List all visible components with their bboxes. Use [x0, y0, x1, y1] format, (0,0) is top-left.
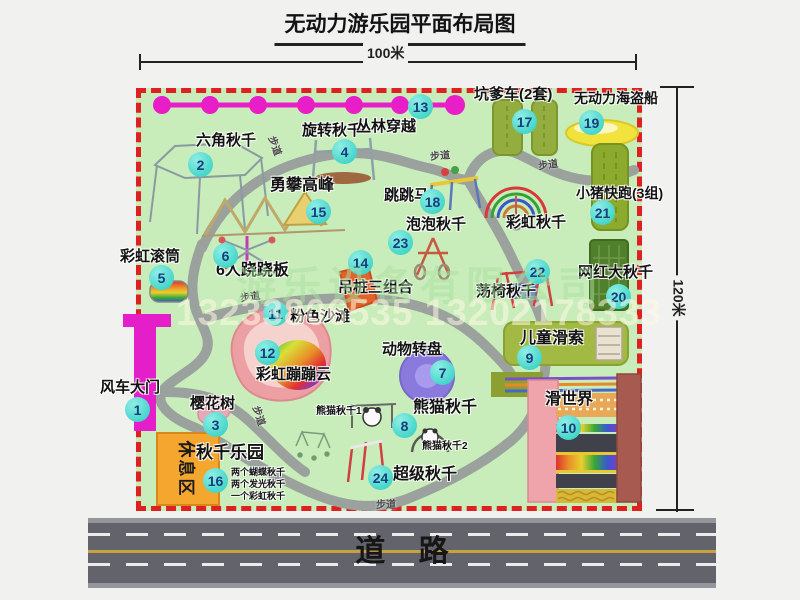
- label-cherry-tree: 樱花树: [190, 396, 235, 413]
- path-label-3: 步道: [537, 155, 559, 173]
- badge-24: 24: [368, 465, 393, 490]
- screenshot-stage: 无动力游乐园平面布局图 100米 120米: [0, 0, 800, 600]
- label-swing-paradise-note-3: 一个彩虹秋千: [231, 492, 285, 502]
- badge-11: 11: [263, 301, 288, 326]
- badge-21: 21: [590, 200, 615, 225]
- label-rainbow-roller: 彩虹滚筒: [120, 249, 180, 266]
- dimension-tick-right-top: [660, 86, 694, 88]
- label-pit-cars: 坑爹车(2套): [474, 87, 552, 104]
- label-windmill-gate: 风车大门: [100, 380, 160, 397]
- bubble-swing-structure: [415, 238, 449, 279]
- dimension-tick-top-left: [139, 54, 141, 70]
- label-pig-run: 小猪快跑(3组): [576, 186, 663, 201]
- badge-23: 23: [388, 230, 413, 255]
- badge-14: 14: [348, 250, 373, 275]
- badge-6: 6: [213, 243, 238, 268]
- label-rainbow-swing: 彩虹秋千: [506, 215, 566, 232]
- label-animal-turntable: 动物转盘: [382, 342, 442, 359]
- badge-17: 17: [512, 109, 537, 134]
- badge-4: 4: [332, 139, 357, 164]
- label-pink-beach: 粉色沙滩: [290, 309, 350, 326]
- badge-20: 20: [606, 284, 631, 309]
- label-bubble-swing: 泡泡秋千: [406, 217, 466, 234]
- path-label-6: 步道: [376, 496, 396, 511]
- dimension-height-label: 120米: [669, 275, 689, 320]
- badge-16: 16: [203, 468, 228, 493]
- badge-13: 13: [408, 94, 433, 119]
- label-super-swing: 超级秋千: [393, 466, 457, 484]
- badge-12: 12: [255, 340, 280, 365]
- badge-8: 8: [392, 413, 417, 438]
- dimension-width-label: 100米: [363, 43, 408, 63]
- dimension-tick-right-bottom: [656, 509, 694, 511]
- label-hexagon-swing: 六角秋千: [196, 133, 256, 150]
- badge-2: 2: [188, 152, 213, 177]
- label-swing-paradise-note-1: 两个蝴蝶秋千: [231, 468, 285, 478]
- dimension-tick-top-right: [635, 54, 637, 70]
- badge-3: 3: [203, 412, 228, 437]
- label-big-net-swing: 网红大秋千: [578, 265, 653, 282]
- path-label-2: 步道: [429, 146, 450, 163]
- badge-19: 19: [579, 110, 604, 135]
- badge-15: 15: [306, 199, 331, 224]
- badge-7: 7: [430, 360, 455, 385]
- badge-5: 5: [149, 265, 174, 290]
- label-swing-chair: 荡椅秋千: [476, 284, 536, 301]
- label-rainbow-cloud: 彩虹蹦蹦云: [256, 367, 331, 384]
- badge-22: 22: [525, 259, 550, 284]
- label-panda-swing: 熊猫秋千: [413, 399, 477, 417]
- label-pirate-ship: 无动力海盗船: [574, 91, 658, 106]
- swing-paradise-doodles: [296, 432, 330, 460]
- label-swing-paradise-note-2: 两个发光秋千: [231, 480, 285, 490]
- label-swing-paradise: 秋千乐园: [196, 444, 264, 463]
- label-jungle-crossing: 丛林穿越: [356, 119, 416, 136]
- badge-9: 9: [517, 345, 542, 370]
- badge-18: 18: [420, 189, 445, 214]
- label-rotating-swing: 旋转秋千: [302, 123, 362, 140]
- label-hanging-piles: 吊桩三组合: [338, 280, 413, 297]
- label-panda-swing-2: 熊猫秋千2: [422, 441, 468, 452]
- badge-1: 1: [125, 397, 150, 422]
- path-label-4: 步道: [239, 287, 261, 305]
- label-slide-world: 滑世界: [545, 391, 593, 409]
- badge-10: 10: [556, 415, 581, 440]
- label-panda-swing-1: 熊猫秋千1: [316, 406, 362, 417]
- label-climbing-peak: 勇攀高峰: [270, 177, 334, 195]
